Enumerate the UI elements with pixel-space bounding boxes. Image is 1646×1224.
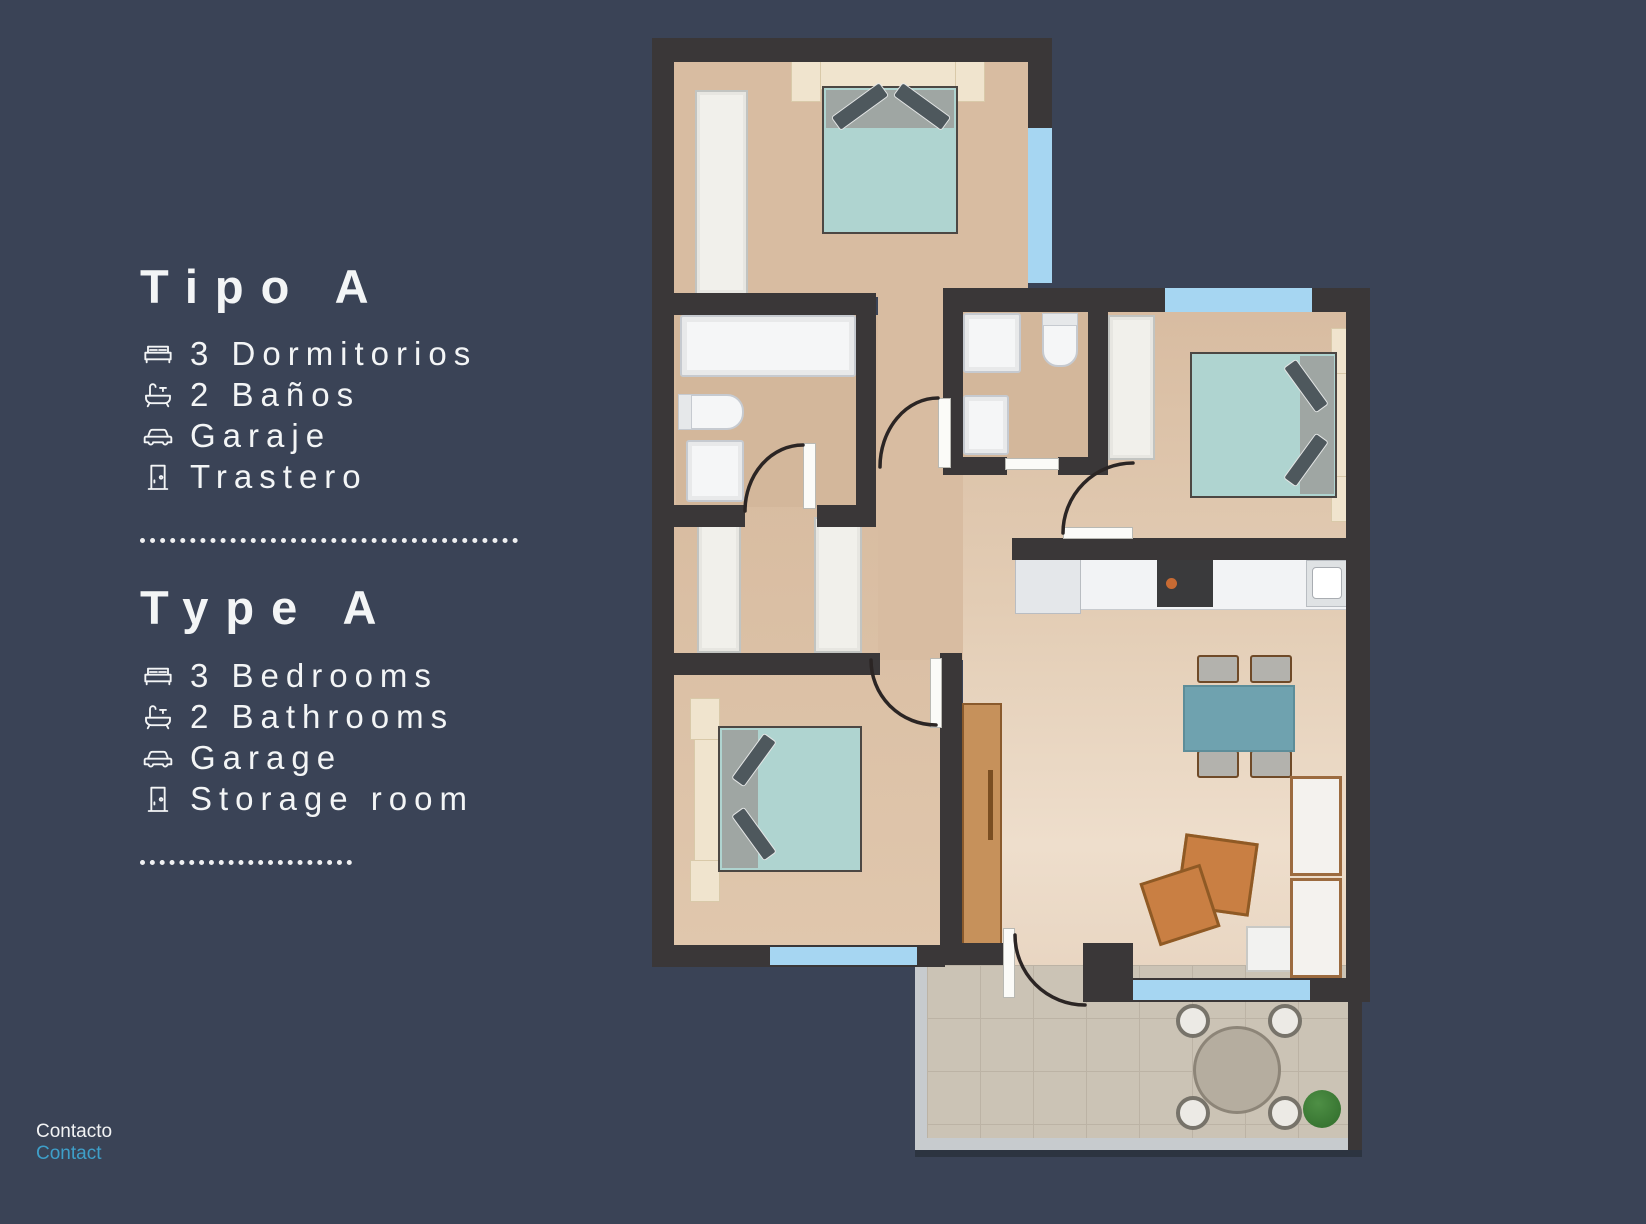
- terrace-edge-shadow: [915, 1150, 1362, 1157]
- wall: [1012, 538, 1370, 560]
- door-leaf: [1003, 928, 1015, 998]
- wall: [856, 293, 876, 527]
- bedroom-1-nightstand: [791, 58, 821, 102]
- bookshelf: [1290, 776, 1342, 876]
- wall: [652, 38, 674, 967]
- terrace-railing-left: [915, 965, 927, 1150]
- window: [1133, 980, 1310, 1000]
- wall: [652, 505, 745, 527]
- dining-chair: [1197, 655, 1239, 683]
- floor-plan: [0, 0, 1646, 1224]
- wall: [1083, 943, 1133, 1002]
- dining-chair: [1250, 655, 1292, 683]
- dining-chair: [1250, 750, 1292, 778]
- bedroom-2-wardrobe: [1108, 315, 1155, 460]
- wall: [1346, 288, 1370, 1002]
- wall: [1088, 288, 1108, 475]
- door-leaf: [930, 658, 942, 728]
- storage-cabinet: [962, 703, 1002, 945]
- wall: [652, 38, 1052, 62]
- terrace-railing-bottom: [915, 1138, 1362, 1150]
- terrace-plant: [1303, 1090, 1341, 1128]
- bedroom-3-nightstand: [690, 698, 720, 740]
- washbasin: [686, 440, 744, 502]
- wall: [652, 293, 876, 315]
- fridge: [1015, 556, 1081, 614]
- side-table: [1246, 926, 1292, 972]
- terrace-chair: [1176, 1004, 1210, 1038]
- door-leaf: [803, 443, 816, 509]
- wall: [940, 653, 962, 965]
- terrace-chair: [1268, 1096, 1302, 1130]
- terrace-table: [1193, 1026, 1281, 1114]
- bedroom-3-nightstand: [690, 860, 720, 902]
- bedroom-1-nightstand: [955, 58, 985, 102]
- toilet-tank: [678, 394, 692, 430]
- terrace-chair: [1268, 1004, 1302, 1038]
- cooktop-knob: [1166, 578, 1177, 589]
- window: [1165, 288, 1312, 312]
- window: [770, 947, 917, 965]
- terrace-railing-right: [1348, 1002, 1362, 1150]
- wall: [1028, 62, 1052, 132]
- wall: [940, 943, 1012, 965]
- window: [1028, 128, 1052, 283]
- wall: [1058, 457, 1108, 475]
- wall: [943, 457, 1007, 475]
- dining-chair: [1197, 750, 1239, 778]
- hall-closet: [697, 517, 741, 653]
- washbasin: [963, 395, 1009, 455]
- bedroom-1-wardrobe: [695, 90, 748, 295]
- sink-basin: [1312, 567, 1342, 599]
- dining-table: [1183, 685, 1295, 752]
- wall: [945, 288, 1167, 312]
- brochure-page: Tipo A 3 Dormitorios 2 Baños Garaje: [0, 0, 1646, 1224]
- toilet-tank: [1042, 313, 1078, 326]
- bathtub: [680, 315, 856, 377]
- wall: [652, 653, 880, 675]
- door-leaf: [938, 398, 951, 468]
- hall-closet: [814, 517, 862, 653]
- shower-tray: [963, 313, 1021, 373]
- door-threshold: [1005, 458, 1059, 470]
- cabinet-handle: [988, 770, 993, 840]
- wall: [817, 505, 876, 527]
- bookshelf: [1290, 878, 1342, 978]
- door-leaf: [1063, 527, 1133, 539]
